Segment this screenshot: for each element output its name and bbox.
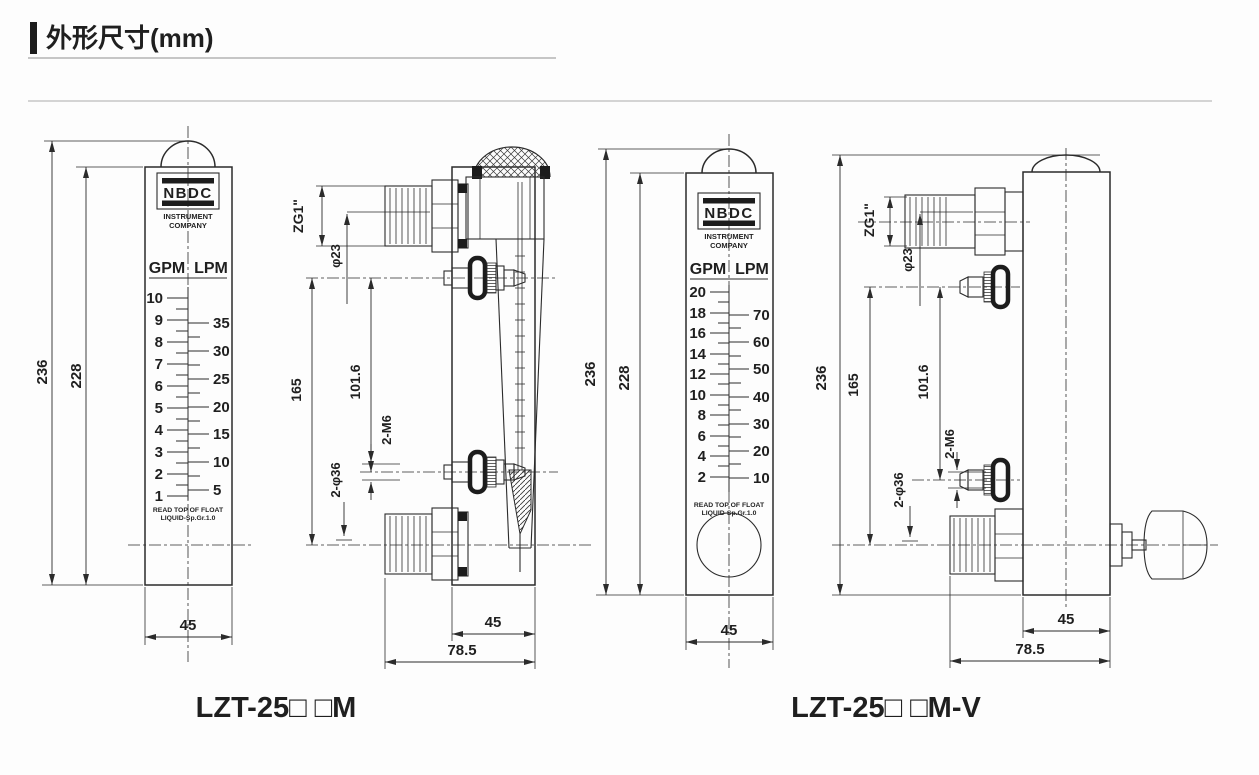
dim-label-center-height: 165 [288, 378, 304, 402]
dim-label-mount-pitch: 101.6 [915, 364, 931, 399]
gpm-tick-label: 10 [689, 387, 706, 404]
gpm-tick-label: 3 [155, 444, 163, 461]
dim-label-center-height: 165 [845, 373, 861, 397]
dim-label-total-height: 236 [582, 361, 599, 386]
gpm-tick-label: 4 [155, 422, 164, 439]
lpm-tick-label: 30 [753, 416, 770, 433]
scale-note-line2: LIQUID-Sp.Gr.1.0 [161, 515, 216, 522]
lpm-tick-label: 5 [213, 482, 221, 499]
bottom-fitting [385, 508, 468, 580]
scale-ticks [710, 285, 749, 492]
gpm-tick-label: 10 [146, 290, 163, 307]
lpm-tick-label: 10 [213, 454, 230, 471]
dim-165: 165 [845, 287, 870, 545]
dim-label-depth: 78.5 [447, 642, 476, 659]
lpm-tick-label: 25 [213, 371, 230, 388]
lpm-tick-label: 20 [213, 399, 230, 416]
dim-label-depth: 78.5 [1015, 641, 1044, 658]
gpm-tick-label: 2 [155, 466, 163, 483]
meter-mv-side-view: 236 ZG1" φ23 165 101.6 2-M6 [813, 148, 1218, 668]
lpm-tick-label: 30 [213, 343, 230, 360]
gpm-scale-labels: 10 9 8 7 6 5 4 3 2 1 [146, 290, 163, 505]
dim-zg1: ZG1" [290, 186, 387, 246]
dim-label-mount-thread: 2-M6 [942, 429, 957, 459]
gpm-tick-label: 8 [155, 334, 163, 351]
scale-ticks [167, 287, 209, 500]
lower-mount-bolt [912, 460, 1020, 500]
dim-label-thread: ZG1" [290, 199, 306, 233]
dim-label-panel-height: 228 [616, 365, 633, 390]
page-header: 外形尺寸(mm) [28, 22, 1212, 101]
dim-label-mount-thread: 2-M6 [379, 415, 394, 445]
dim-2-phi36: 2-φ36 [891, 472, 918, 541]
lpm-tick-label: 20 [753, 443, 770, 460]
dim-228: 228 [616, 173, 684, 595]
technical-drawing-canvas: 外形尺寸(mm) NBDC INSTRUMENT COMPANY GPM LPM [0, 0, 1259, 775]
dim-label-thread: ZG1" [861, 203, 877, 237]
meter-mv-front-view: NBDC INSTRUMENT COMPANY GPM LPM 20 18 16… [582, 134, 773, 668]
dim-label-body-width: 45 [485, 614, 502, 631]
dim-label-bore: φ23 [328, 244, 343, 268]
scale-note-line1: READ TOP OF FLOAT [694, 502, 765, 509]
upper-mount-bolt [864, 267, 1020, 307]
lpm-header: LPM [194, 260, 228, 277]
lpm-scale-labels: 35 30 25 20 15 10 5 [213, 315, 230, 499]
model-label-mv: LZT-25□ □M-V [791, 692, 981, 724]
meter-m-front-view: NBDC INSTRUMENT COMPANY GPM LPM 10 9 8 7… [34, 126, 252, 662]
brand-name: NBDC [704, 205, 753, 222]
dim-228: 228 [68, 167, 143, 585]
gpm-scale-labels: 20 18 16 14 12 10 8 6 4 2 [689, 284, 706, 486]
lpm-header: LPM [735, 261, 769, 278]
gpm-tick-label: 9 [155, 312, 163, 329]
dim-101-6: 101.6 [347, 278, 371, 472]
dim-2-m6: 2-M6 [942, 429, 986, 508]
dim-label-bore: φ23 [900, 248, 915, 272]
dim-2-m6: 2-M6 [362, 415, 400, 500]
lpm-tick-label: 10 [753, 470, 770, 487]
dim-label-total-height: 236 [813, 365, 830, 390]
dim-165: 165 [288, 278, 312, 545]
gpm-tick-label: 2 [698, 469, 706, 486]
gpm-tick-label: 12 [689, 366, 706, 383]
dim-phi23: φ23 [328, 212, 430, 304]
gpm-tick-label: 6 [698, 428, 706, 445]
gpm-tick-label: 8 [698, 407, 706, 424]
dim-label-body-width: 45 [1058, 611, 1075, 628]
lpm-scale-labels: 70 60 50 40 30 20 10 [753, 307, 770, 487]
dim-78-5: 78.5 [385, 578, 535, 669]
dim-label-panel-height: 228 [68, 363, 85, 388]
dim-zg1: ZG1" [861, 197, 907, 246]
gpm-tick-label: 14 [689, 346, 706, 363]
gpm-header: GPM [149, 260, 185, 277]
gpm-tick-label: 20 [689, 284, 706, 301]
gpm-header: GPM [690, 261, 726, 278]
top-cap-dome [474, 147, 550, 177]
model-label-m: LZT-25□ □M [196, 692, 357, 724]
dim-2-phi36: 2-φ36 [328, 462, 352, 540]
dim-78-5: 78.5 [950, 576, 1110, 668]
title-accent-bar [30, 22, 37, 54]
dim-label-flange: 2-φ36 [328, 462, 343, 497]
dim-45-front: 45 [145, 587, 232, 645]
page-title: 外形尺寸(mm) [46, 23, 214, 53]
gpm-tick-label: 4 [698, 448, 707, 465]
dim-label-width: 45 [721, 622, 738, 639]
dim-45-side: 45 [452, 587, 535, 641]
gpm-tick-label: 18 [689, 305, 706, 322]
brand-sub1: INSTRUMENT [163, 212, 213, 221]
lpm-tick-label: 60 [753, 334, 770, 351]
top-fitting [385, 180, 468, 252]
gpm-tick-label: 5 [155, 400, 163, 417]
brand-sub2: COMPANY [169, 221, 207, 230]
top-fitting [858, 188, 1030, 255]
lpm-tick-label: 70 [753, 307, 770, 324]
bonnet [466, 177, 544, 239]
dim-label-mount-pitch: 101.6 [347, 364, 363, 399]
brand-logo: NBDC INSTRUMENT COMPANY [698, 193, 760, 250]
meter-body [1023, 172, 1110, 595]
lpm-tick-label: 50 [753, 361, 770, 378]
brand-sub1: INSTRUMENT [704, 232, 754, 241]
dim-label-total-height: 236 [34, 359, 51, 384]
taper-tube [496, 182, 544, 572]
brand-name: NBDC [163, 185, 212, 202]
catalog-page: 外形尺寸(mm) NBDC INSTRUMENT COMPANY GPM LPM [0, 0, 1259, 775]
dim-label-width: 45 [180, 617, 197, 634]
brand-sub2: COMPANY [710, 241, 748, 250]
brand-logo: NBDC INSTRUMENT COMPANY [157, 173, 219, 230]
dim-45-front: 45 [686, 597, 773, 650]
dim-101-6: 101.6 [915, 287, 940, 480]
gpm-tick-label: 16 [689, 325, 706, 342]
dim-45-side: 45 [1023, 597, 1110, 638]
dim-phi23: φ23 [900, 212, 973, 306]
lpm-tick-label: 35 [213, 315, 230, 332]
upper-mount-bolt [306, 258, 558, 298]
lpm-tick-label: 15 [213, 426, 230, 443]
meter-m-side-view: ZG1" φ23 165 101.6 2-M6 2-φ36 [288, 147, 592, 669]
lpm-tick-label: 40 [753, 389, 770, 406]
gpm-tick-label: 7 [155, 356, 163, 373]
dim-label-flange: 2-φ36 [891, 472, 906, 507]
gpm-tick-label: 6 [155, 378, 163, 395]
scale-note-line1: READ TOP OF FLOAT [153, 507, 224, 514]
gpm-tick-label: 1 [155, 488, 163, 505]
